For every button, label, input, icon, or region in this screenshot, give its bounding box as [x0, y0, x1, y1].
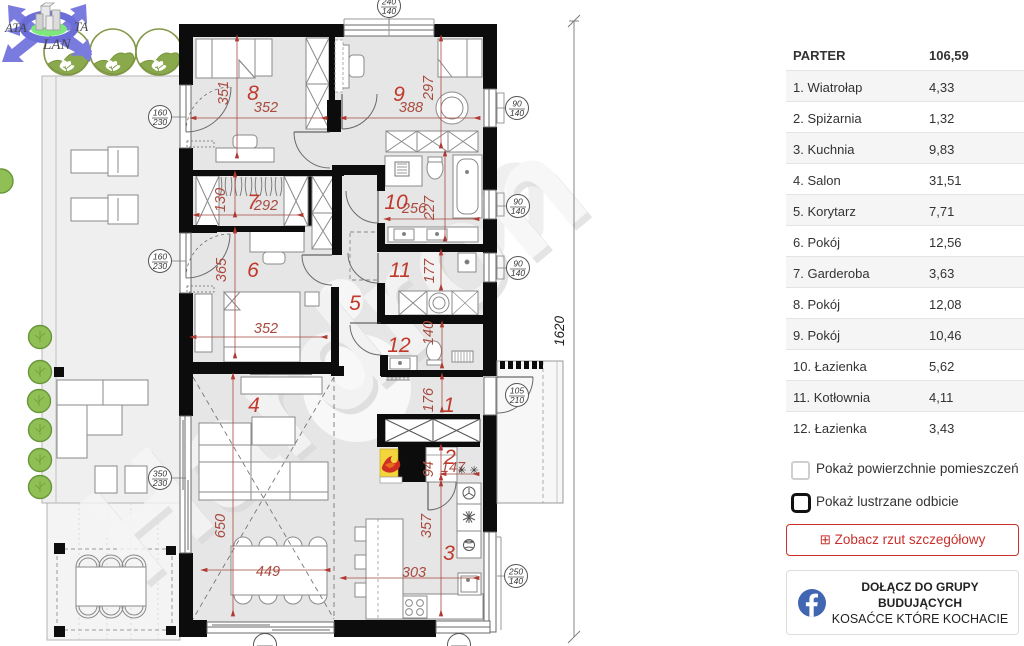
svg-text:160: 160 — [153, 108, 167, 118]
svg-text:✳ ✳: ✳ ✳ — [457, 465, 479, 477]
svg-text:11: 11 — [389, 259, 411, 282]
svg-text:90: 90 — [513, 197, 523, 207]
svg-text:303: 303 — [402, 565, 426, 581]
svg-text:1620: 1620 — [552, 315, 567, 346]
svg-text:3: 3 — [443, 542, 455, 565]
svg-text:90: 90 — [513, 259, 523, 269]
svg-text:105: 105 — [510, 386, 524, 396]
svg-text:227: 227 — [422, 195, 438, 221]
svg-text:140: 140 — [382, 6, 396, 16]
svg-text:140: 140 — [421, 321, 437, 345]
svg-text:177: 177 — [422, 258, 438, 283]
svg-text:230: 230 — [152, 261, 167, 271]
svg-text:292: 292 — [253, 198, 278, 214]
svg-text:388: 388 — [399, 100, 423, 116]
svg-text:352: 352 — [254, 321, 278, 337]
svg-text:ATA: ATA — [4, 20, 27, 35]
svg-text:650: 650 — [213, 514, 229, 538]
svg-text:449: 449 — [256, 564, 280, 580]
svg-text:5: 5 — [349, 292, 361, 315]
svg-text:140: 140 — [510, 108, 524, 118]
svg-text:250: 250 — [508, 567, 523, 577]
svg-text:4: 4 — [248, 394, 260, 417]
svg-text:297: 297 — [421, 75, 437, 101]
svg-text:230: 230 — [152, 478, 167, 488]
svg-text:351: 351 — [216, 81, 232, 105]
svg-text:90: 90 — [512, 99, 522, 109]
svg-text:365: 365 — [214, 257, 230, 282]
svg-text:352: 352 — [254, 100, 278, 116]
svg-text:350: 350 — [153, 469, 167, 479]
svg-text:1: 1 — [443, 394, 455, 417]
svg-text:176: 176 — [421, 387, 437, 412]
svg-text:6: 6 — [247, 259, 259, 282]
svg-text:230: 230 — [152, 117, 167, 127]
svg-text:140: 140 — [509, 576, 523, 586]
svg-text:140: 140 — [511, 268, 525, 278]
svg-text:130: 130 — [213, 188, 229, 212]
svg-text:140: 140 — [511, 206, 525, 216]
svg-text:210: 210 — [509, 395, 524, 405]
svg-text:LAN: LAN — [42, 37, 72, 53]
svg-text:357: 357 — [419, 513, 435, 538]
svg-text:12: 12 — [387, 334, 411, 357]
svg-text:94: 94 — [421, 461, 437, 477]
svg-text:TA: TA — [74, 19, 88, 34]
svg-text:160: 160 — [153, 252, 167, 262]
